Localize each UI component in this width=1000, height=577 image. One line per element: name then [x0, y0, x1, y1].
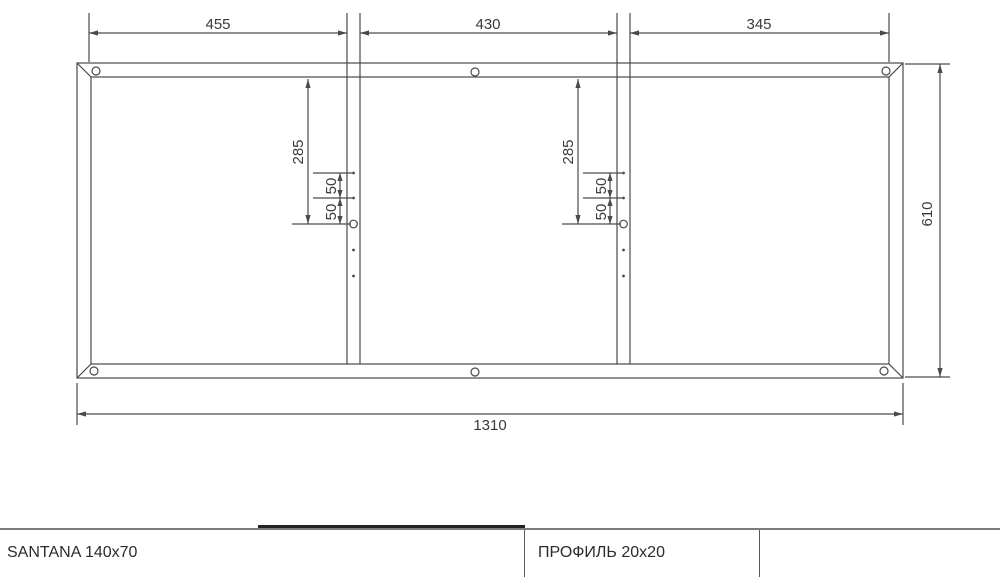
hole-strut2-small [622, 172, 625, 175]
dim-label-50-strut2-upper: 50 [593, 178, 610, 195]
dimension-top-segments: 455 430 345 [89, 13, 889, 77]
hole-strut1-small [352, 172, 355, 175]
frame-drawing: 455 430 345 1310 610 [0, 0, 1000, 520]
dim-label-610: 610 [919, 201, 936, 226]
profile-spec: ПРОФИЛЬ 20x20 [538, 544, 665, 561]
frame-holes [90, 67, 890, 376]
dim-label-285-strut2: 285 [560, 139, 577, 164]
title-block-empty-cell [760, 530, 1000, 577]
dim-label-50-strut2-lower: 50 [593, 204, 610, 221]
dim-label-345: 345 [746, 16, 771, 33]
frame-outer-rect [77, 63, 903, 378]
miter-top-right [889, 63, 903, 77]
title-block-profile-cell: ПРОФИЛЬ 20x20 [525, 530, 760, 577]
frame-inner-rect [91, 77, 889, 364]
hole-strut2-small [622, 197, 625, 200]
hole-strut1-small [352, 197, 355, 200]
product-name: SANTANA 140x70 [7, 544, 137, 561]
hole-top-left [92, 67, 100, 75]
hole-bottom-right [880, 367, 888, 375]
hole-top-right [882, 67, 890, 75]
dim-label-50-strut1-lower: 50 [323, 204, 340, 221]
dim-label-455: 455 [205, 16, 230, 33]
technical-drawing-page: 455 430 345 1310 610 [0, 0, 1000, 577]
dim-label-285-strut1: 285 [290, 139, 307, 164]
hole-top-center [471, 68, 479, 76]
frame-outline [77, 63, 903, 378]
hole-strut1-small [352, 275, 355, 278]
miter-bottom-right [889, 364, 903, 378]
miter-top-left [77, 63, 91, 77]
hole-bottom-left [90, 367, 98, 375]
title-block-product-cell: SANTANA 140x70 [0, 530, 525, 577]
dimension-total-height: 610 [905, 64, 950, 377]
dimension-total-width: 1310 [77, 383, 903, 434]
dimension-strut2-holes: 285 50 50 [560, 79, 622, 224]
hole-bottom-center [471, 368, 479, 376]
dimension-strut1-holes: 285 50 50 [290, 79, 352, 224]
dim-label-50-strut1-upper: 50 [323, 178, 340, 195]
title-block: SANTANA 140x70 ПРОФИЛЬ 20x20 [0, 528, 1000, 577]
dim-label-1310: 1310 [473, 417, 506, 434]
hole-strut2-small [622, 249, 625, 252]
hole-strut1-small [352, 249, 355, 252]
dim-label-430: 430 [475, 16, 500, 33]
hole-strut2-small [622, 275, 625, 278]
miter-bottom-left [77, 364, 91, 378]
